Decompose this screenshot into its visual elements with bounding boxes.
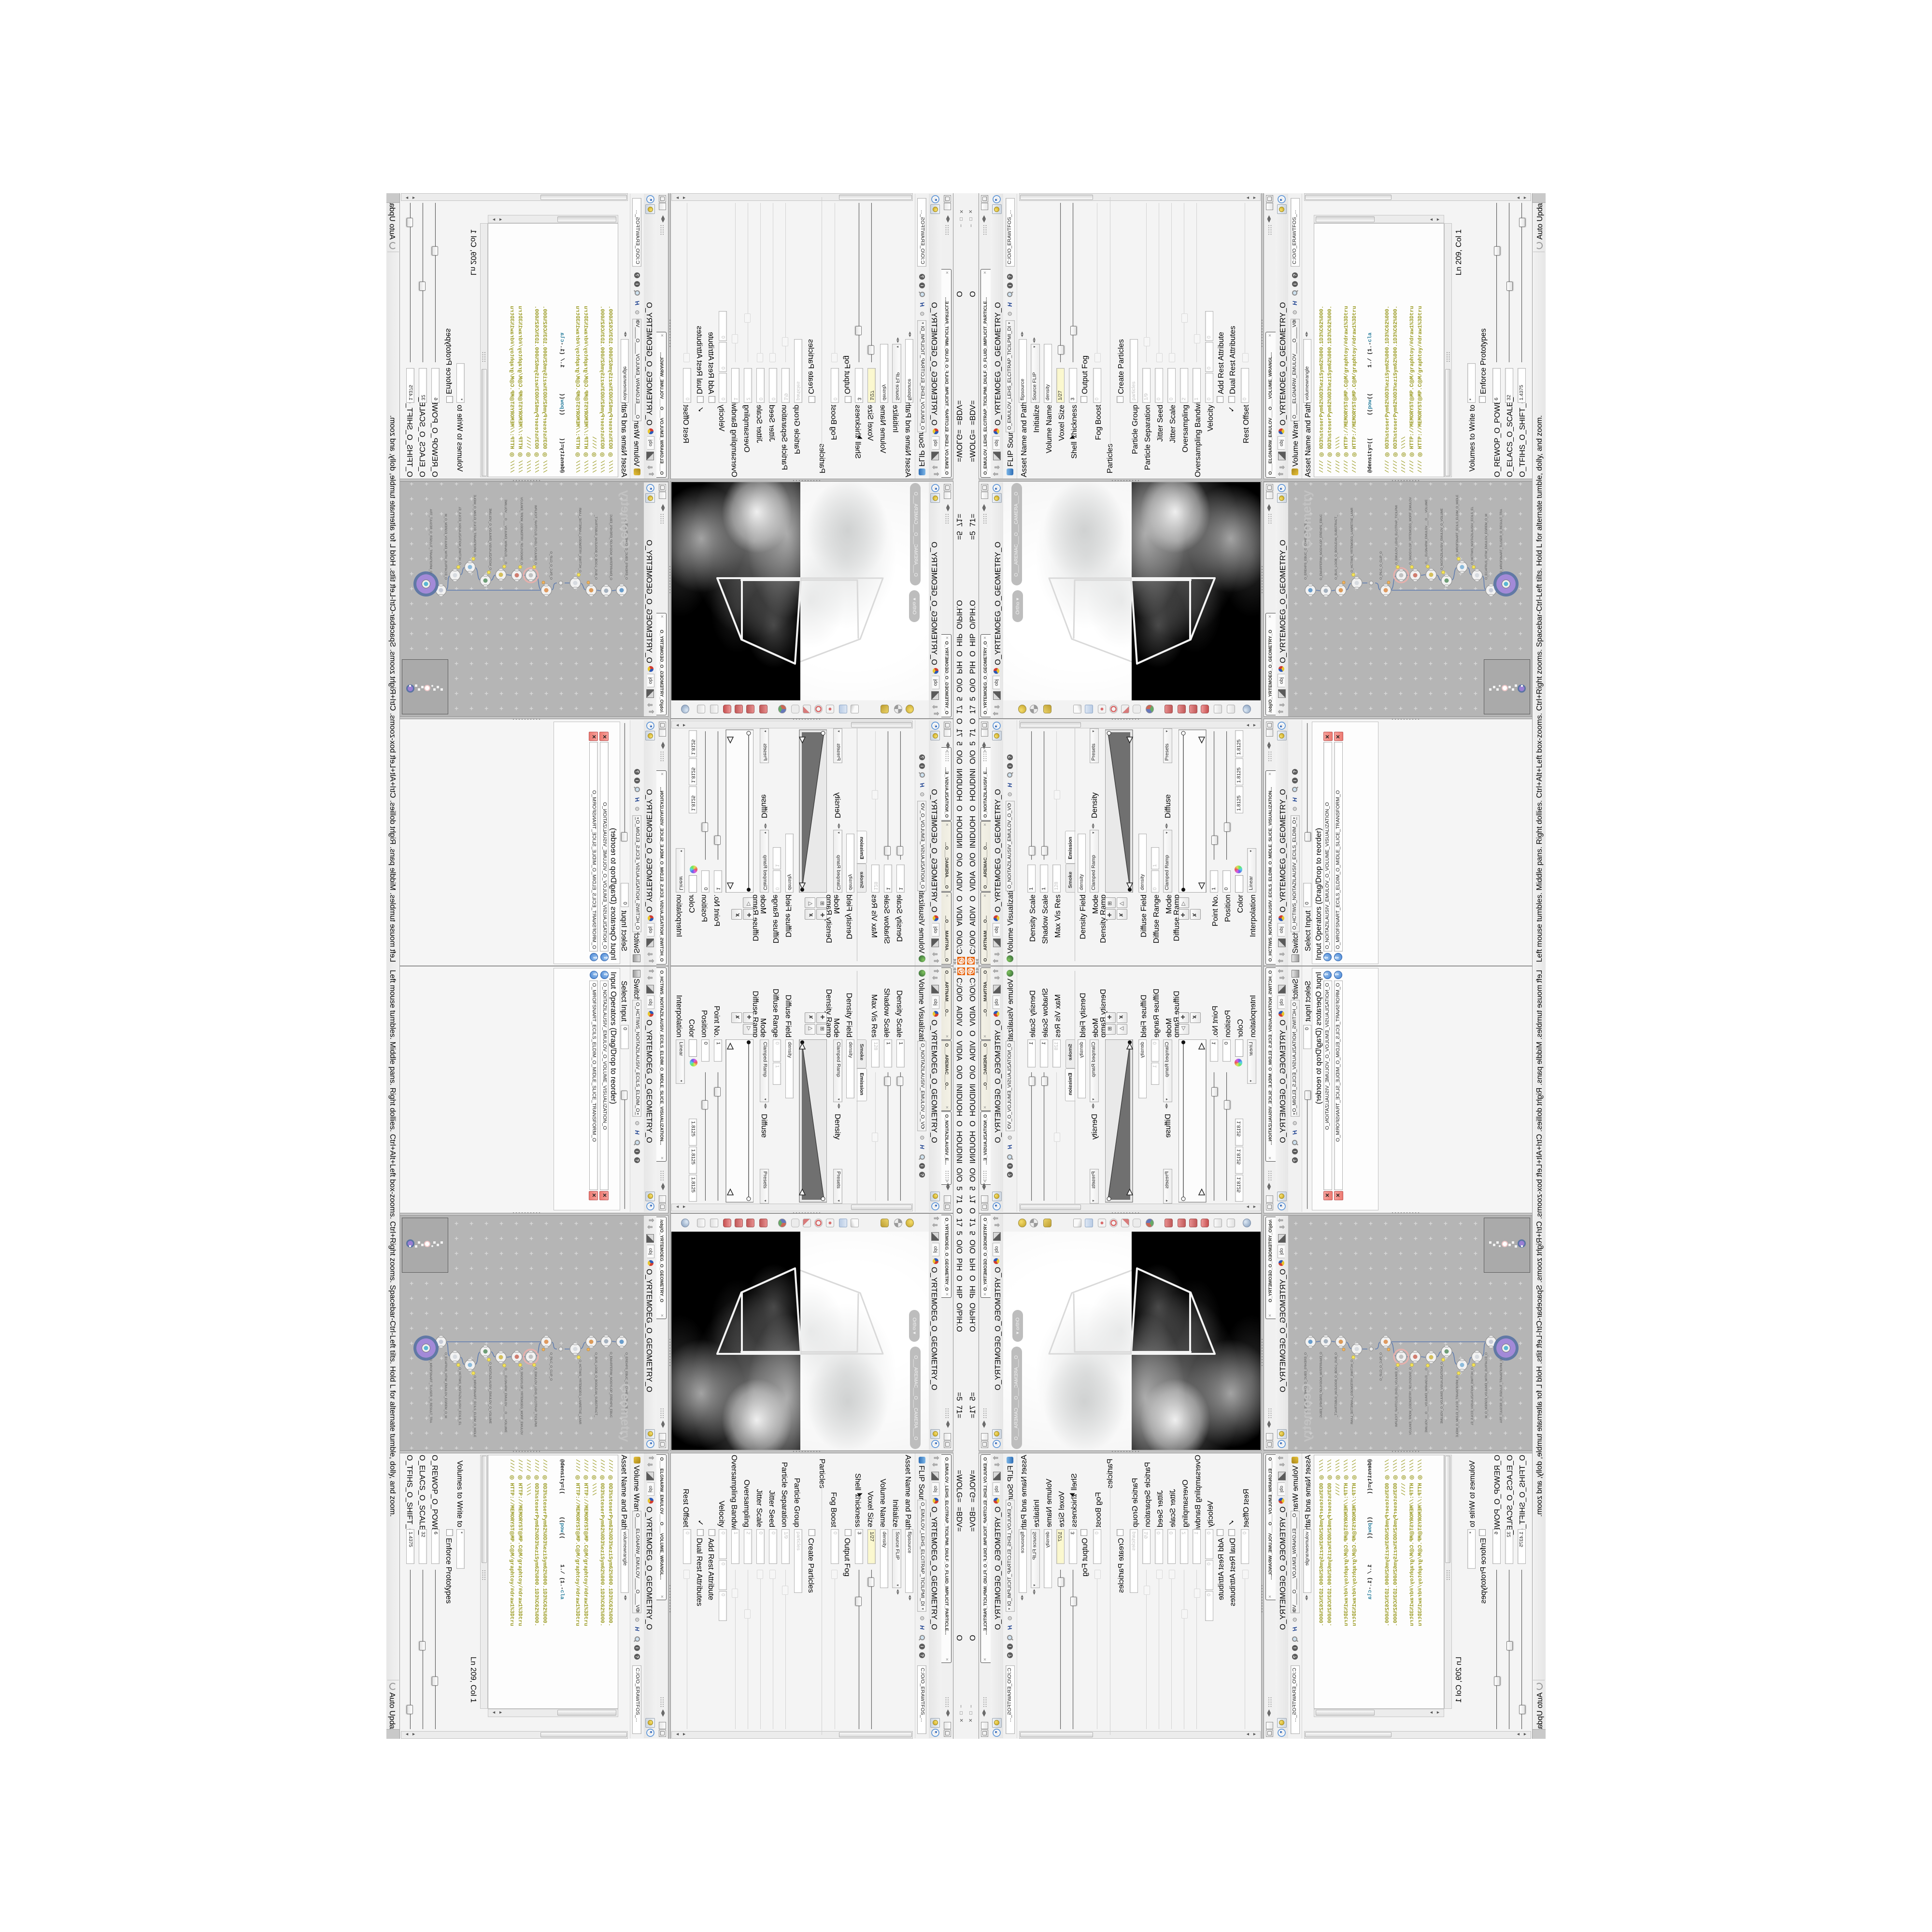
svg-text:O_EMARFERIW_NOGYLOP_EREHPS_EBU: O_EMARFERIW_NOGYLOP_EREHPS_EBUC	[1320, 1352, 1323, 1418]
svg-text:O___ELGNARW_EMULOV___O___VOLUM: O___ELGNARW_EMULOV___O___VOLUME	[504, 1368, 507, 1433]
svg-text:O_MROFSNART_ECILS_ELDIM_O_MIDL: O_MROFSNART_ECILS_ELDIM_O_MIDLE	[473, 495, 476, 556]
svg-text:O_BUS_LOOB_O_BOOLEAN_SUBSTRACT: O_BUS_LOOB_O_BOOLEAN_SUBSTRACT_	[1335, 515, 1338, 580]
svg-text:O_BUS_LOOB_O_BOOLEAN_SUBSTRACT: O_BUS_LOOB_O_BOOLEAN_SUBSTRACT_	[594, 515, 597, 580]
svg-text:O_HCTIWS_NOITAZILAUSIV_ECILS_E: O_HCTIWS_NOITAZILAUSIV_ECILS_EL	[1471, 506, 1474, 565]
svg-text:O_MROFSNART_ECILS_ELDIM_O_MIDL: O_MROFSNART_ECILS_ELDIM_O_MIDLE	[1456, 495, 1459, 556]
svg-text:O_ECAFRUS_HTIW_EMULOV_EGREM_O_: O_ECAFRUS_HTIW_EMULOV_EGREM_O_M	[1485, 1352, 1488, 1418]
svg-text:O_PILC_O_CLIP_O: O_PILC_O_CLIP_O	[549, 1352, 553, 1381]
svg-text:O_EMULOV_LEHS_ELCITRAP_TICILPM: O_EMULOV_LEHS_ELCITRAP_TICILPMI	[534, 1367, 537, 1427]
svg-text:O_MROFSNART_TLUSER_O_RESULT_TR: O_MROFSNART_TLUSER_O_RESULT_TRA	[1500, 1359, 1503, 1423]
svg-text:O_BUS_LOOB_O_BOOLEAN_SUBSTRACT: O_BUS_LOOB_O_BOOLEAN_SUBSTRACT_	[1335, 1352, 1338, 1417]
svg-text:O_NOITAZILAUSIV_EMULOV_O_VOLUM: O_NOITAZILAUSIV_EMULOV_O_VOLUME	[1440, 1362, 1444, 1424]
svg-text:O_EMARFERIW_NOGYLOP_EREHPS_EBU: O_EMARFERIW_NOGYLOP_EREHPS_EBUC	[1320, 514, 1323, 580]
svg-text:O___ELGNARW_EMULOV___O___VOLUM: O___ELGNARW_EMULOV___O___VOLUME	[1425, 499, 1428, 564]
svg-text:O_MROFSNART_ECILS_ELDIM_O_MIDL: O_MROFSNART_ECILS_ELDIM_O_MIDLE	[1456, 1376, 1459, 1437]
svg-text:O_NOITAZILAUSIV_EMULOV_O_VOLUM: O_NOITAZILAUSIV_EMULOV_O_VOLUME	[1440, 508, 1444, 570]
svg-text:O_SNOGYLOP_YRTEMOEG_MORF_EMULO: O_SNOGYLOP_YRTEMOEG_MORF_EMULOV	[1409, 1367, 1412, 1435]
svg-text:O_PILC_O_CLIP_O: O_PILC_O_CLIP_O	[549, 551, 553, 580]
svg-text:O_HCTIWS_NOITAZILAUSIV_ECILS_E: O_HCTIWS_NOITAZILAUSIV_ECILS_EL	[458, 1367, 461, 1426]
svg-text:O_MROFSNART_TLUSER_O_RESULT_TR: O_MROFSNART_TLUSER_O_RESULT_TRA	[1500, 509, 1503, 573]
svg-text:O_HCTIWS_YRTEMOEG_LANRETXE_LAN: O_HCTIWS_YRTEMOEG_LANRETXE_LANR	[578, 508, 582, 572]
svg-text:O_BUS_LOOB_O_BOOLEAN_SUBSTRACT: O_BUS_LOOB_O_BOOLEAN_SUBSTRACT_	[594, 1352, 597, 1417]
svg-text:O_HCTIWS_YRTEMOEG_LANRETXE_LAN: O_HCTIWS_YRTEMOEG_LANRETXE_LANR	[1350, 508, 1354, 572]
svg-text:O_SNOGYLOP_YRTEMOEG_MORF_EMULO: O_SNOGYLOP_YRTEMOEG_MORF_EMULOV	[520, 1367, 523, 1435]
svg-text:O_HCTIWS_YRTEMOEG_LANRETXE_LAN: O_HCTIWS_YRTEMOEG_LANRETXE_LANR	[1350, 1360, 1354, 1424]
svg-text:O_MROFSNART_TLUSER_O_RESULT_TR: O_MROFSNART_TLUSER_O_RESULT_TRA	[429, 1359, 432, 1423]
svg-text:O_MROFSNART_ECILS_ELDIM_O_MIDL: O_MROFSNART_ECILS_ELDIM_O_MIDLE	[473, 1376, 476, 1437]
svg-text:O_EMULOV_LEHS_ELCITRAP_TICILPM: O_EMULOV_LEHS_ELCITRAP_TICILPMI	[1395, 1367, 1398, 1427]
svg-text:O_ECAFRUS_HTIW_EMULOV_EGREM_O_: O_ECAFRUS_HTIW_EMULOV_EGREM_O_M	[444, 1352, 447, 1418]
svg-text:O_ECAFRUS_HTIW_EMULOV_EGREM_O_: O_ECAFRUS_HTIW_EMULOV_EGREM_O_M	[1485, 514, 1488, 580]
svg-text:O_NOITAZILAUSIV_EMULOV_O_VOLUM: O_NOITAZILAUSIV_EMULOV_O_VOLUME	[488, 508, 492, 570]
svg-text:O_EMULOV_LEHS_ELCITRAP_TICILPM: O_EMULOV_LEHS_ELCITRAP_TICILPMI	[1395, 505, 1398, 565]
svg-text:O_NOITAZILAUSIV_EMULOV_O_VOLUM: O_NOITAZILAUSIV_EMULOV_O_VOLUME	[488, 1362, 492, 1424]
svg-text:O_EMARFERIW_NOGYLOP_EREHPS_EBU: O_EMARFERIW_NOGYLOP_EREHPS_EBUC	[609, 1352, 612, 1418]
svg-text:O_EMULOV_LEHS_ELCITRAP_TICILPM: O_EMULOV_LEHS_ELCITRAP_TICILPMI	[534, 505, 537, 565]
svg-text:O_HCTIWS_YRTEMOEG_LANRETXE_LAN: O_HCTIWS_YRTEMOEG_LANRETXE_LANR	[578, 1360, 582, 1424]
svg-text:O___ELGNARW_EMULOV___O___VOLUM: O___ELGNARW_EMULOV___O___VOLUME	[504, 499, 507, 564]
svg-text:O_PILC_O_CLIP_O: O_PILC_O_CLIP_O	[1379, 551, 1383, 580]
svg-text:O_HCTIWS_NOITAZILAUSIV_ECILS_E: O_HCTIWS_NOITAZILAUSIV_ECILS_EL	[458, 506, 461, 565]
svg-text:O_MROFSNART_TLUSER_O_RESULT_TR: O_MROFSNART_TLUSER_O_RESULT_TRA	[429, 509, 432, 573]
svg-text:O_SNOGYLOP_YRTEMOEG_MORF_EMULO: O_SNOGYLOP_YRTEMOEG_MORF_EMULOV	[520, 497, 523, 565]
svg-text:O_HCTIWS_NOITAZILAUSIV_ECILS_E: O_HCTIWS_NOITAZILAUSIV_ECILS_EL	[1471, 1367, 1474, 1426]
svg-text:O___ELGNARW_EMULOV___O___VOLUM: O___ELGNARW_EMULOV___O___VOLUME	[1425, 1368, 1428, 1433]
svg-text:O_ECAFRUS_HTIW_EMULOV_EGREM_O_: O_ECAFRUS_HTIW_EMULOV_EGREM_O_M	[444, 514, 447, 580]
svg-text:O_EMARFERIW_NOGYLOP_EREHPS_EBU: O_EMARFERIW_NOGYLOP_EREHPS_EBUC	[609, 514, 612, 580]
svg-text:O_SNOGYLOP_YRTEMOEG_MORF_EMULO: O_SNOGYLOP_YRTEMOEG_MORF_EMULOV	[1409, 497, 1412, 565]
svg-text:O_PILC_O_CLIP_O: O_PILC_O_CLIP_O	[1379, 1352, 1383, 1381]
